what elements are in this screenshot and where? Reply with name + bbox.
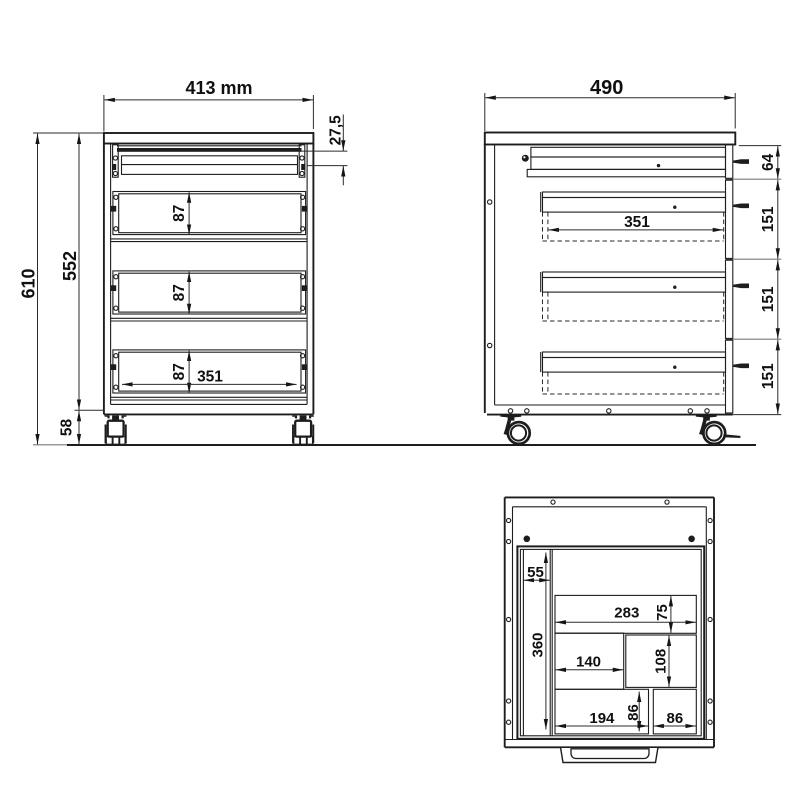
svg-text:552: 552 (60, 251, 80, 281)
svg-text:87: 87 (171, 284, 188, 301)
svg-text:87: 87 (171, 363, 188, 380)
svg-text:151: 151 (760, 206, 777, 232)
svg-text:27,5: 27,5 (328, 115, 345, 146)
svg-text:610: 610 (18, 268, 38, 298)
svg-text:55: 55 (527, 564, 544, 581)
svg-text:151: 151 (760, 286, 777, 312)
svg-text:413 mm: 413 mm (185, 78, 252, 98)
svg-text:86: 86 (625, 704, 642, 721)
svg-text:140: 140 (576, 654, 601, 671)
svg-text:351: 351 (197, 369, 223, 386)
svg-text:64: 64 (760, 153, 777, 171)
svg-text:360: 360 (529, 632, 546, 657)
svg-text:75: 75 (654, 604, 671, 621)
svg-text:87: 87 (171, 205, 188, 222)
svg-text:86: 86 (667, 710, 684, 727)
svg-text:490: 490 (590, 77, 623, 99)
svg-text:151: 151 (760, 363, 777, 389)
svg-text:351: 351 (624, 214, 650, 231)
svg-text:58: 58 (58, 419, 75, 437)
svg-text:283: 283 (614, 604, 639, 621)
svg-text:108: 108 (653, 649, 670, 674)
svg-text:194: 194 (589, 710, 615, 727)
